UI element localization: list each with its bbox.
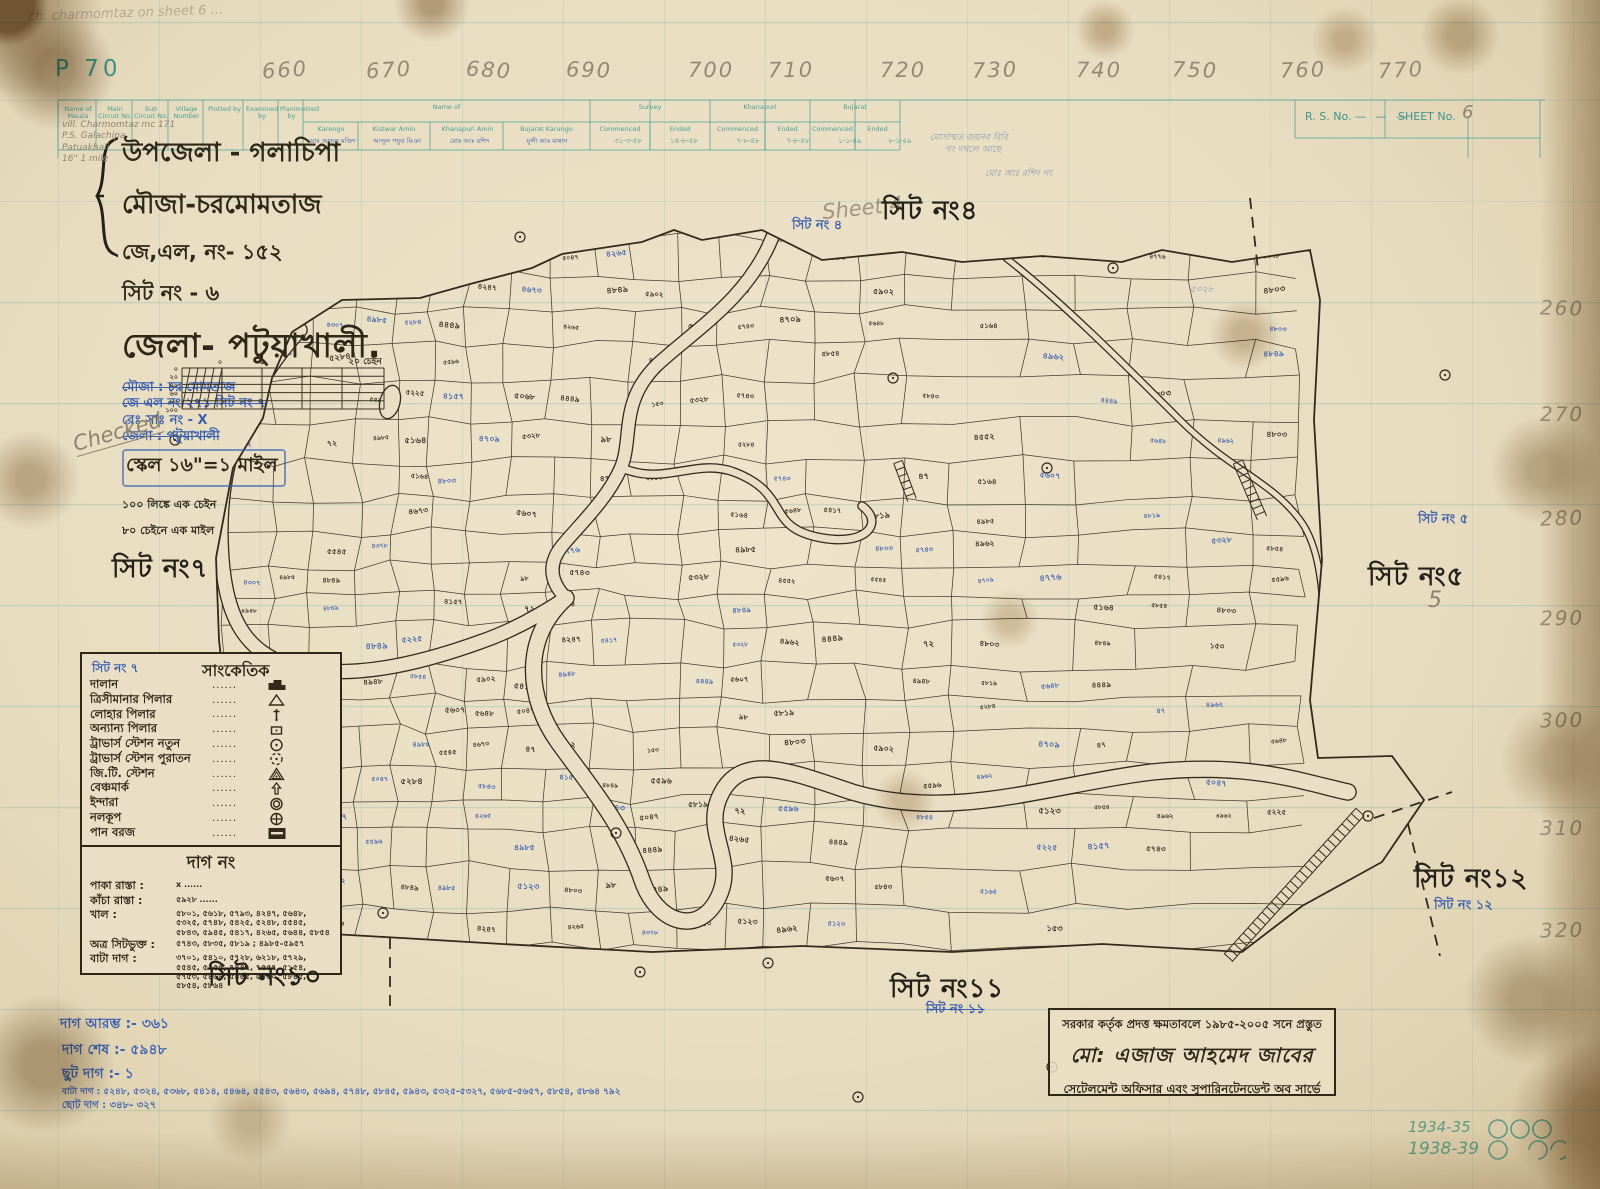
plot-number: ৪৮০৩ bbox=[564, 886, 583, 896]
plot-number: ৫৭৪৩ bbox=[737, 322, 754, 332]
table-column-header: মোঃ আঃ রশিদ bbox=[434, 138, 505, 145]
plot-number: ৫৫৯৬ bbox=[365, 837, 383, 846]
plot-number: ৫৬৪৮ bbox=[475, 709, 495, 718]
plot-number: ৪৮০৩ bbox=[979, 638, 1001, 649]
plot-number: ৪৪৪৯ bbox=[642, 845, 663, 856]
plot-number: ৫০৪৭ bbox=[371, 775, 388, 783]
plot-number: ৫৮৫৪ bbox=[1266, 544, 1284, 553]
dag-row-value: x ...... bbox=[176, 880, 332, 893]
dag-row-value: ৫৯২৮ ...... bbox=[176, 895, 332, 908]
top-ruler-number: 770 bbox=[1377, 57, 1424, 83]
hatched-road bbox=[894, 460, 1364, 962]
plot-number: ৫২৮৪ bbox=[738, 440, 755, 448]
plot-number: ৫৬৪৮ bbox=[1150, 437, 1167, 445]
plot-number: ৪৯৮৫ bbox=[438, 884, 456, 892]
plot-number: ৫৫৯৬ bbox=[778, 804, 800, 813]
plot-number: ৫৫৯৬ bbox=[445, 252, 463, 261]
top-ruler-number: 690 bbox=[566, 57, 613, 82]
plot-number: ৪৯৬২ bbox=[775, 923, 798, 936]
plot-number: ৯৮ bbox=[600, 435, 612, 445]
top-ruler-number: 750 bbox=[1172, 57, 1219, 82]
plot-number: ৪২৬৫ bbox=[728, 834, 750, 845]
plot-number: ১৫৩ bbox=[1046, 923, 1063, 933]
footer-blue-note: ছোট দাগ : ৩৪৮- ৩২৭ bbox=[62, 1098, 156, 1115]
svg-text:২০ চেইন: ২০ চেইন bbox=[348, 356, 382, 367]
top-ruler-number: 740 bbox=[1076, 58, 1122, 82]
plot-number: ৫৭৪৩ bbox=[569, 568, 590, 578]
plot-number: ৪৮৪৯ bbox=[602, 782, 618, 789]
well-icon bbox=[264, 796, 288, 811]
plot-number: ৪৭০৯ bbox=[478, 433, 500, 444]
mauza-note-line: vill. Charmomtaz mc 171 bbox=[62, 120, 175, 131]
plot-number: ৪৭ bbox=[918, 471, 929, 481]
table-column-header: Name of bbox=[303, 104, 590, 111]
plot-number: ৪২৬৫ bbox=[567, 922, 584, 931]
table-column-header: Bujarat Karungo bbox=[505, 126, 588, 133]
plot-number: ৪৭৭৬ bbox=[1039, 572, 1062, 584]
mauza-pencil-note: vill. Charmomtaz mc 171P.S. GalachipaPat… bbox=[62, 120, 175, 165]
plot-number: ১৫৩ bbox=[1209, 641, 1225, 651]
plot-number: ৪৯৮৫ bbox=[279, 574, 295, 581]
plot-number: ৪৭০৯ bbox=[977, 576, 994, 585]
plot-number: ৪৯৮৫ bbox=[735, 544, 756, 555]
table-column-header: Plotted by bbox=[206, 106, 243, 113]
plot-number: ৫৮৫৪ bbox=[1094, 804, 1110, 811]
plot-number: ৫৯০২ bbox=[873, 743, 894, 753]
blue-sheet-label: সিট নং ১১ bbox=[926, 1000, 985, 1021]
plot-number: ৫৩২৮ bbox=[521, 430, 541, 441]
plot-number: ৪৪৪৯ bbox=[828, 837, 848, 847]
table-column-header: Bujarat bbox=[810, 104, 900, 111]
plot-number: ৫৫৯৬ bbox=[443, 358, 460, 367]
plot-number: ৪৮০৩ bbox=[783, 736, 806, 748]
legend-dots: ...... bbox=[212, 798, 264, 809]
mauza-note-line: P.S. Galachipa bbox=[62, 131, 175, 142]
pan-boroj-icon bbox=[264, 826, 288, 841]
plot-number: ৫৬০৭ bbox=[445, 705, 466, 714]
plot-number: ৪৪৪৯ bbox=[438, 319, 460, 331]
plot-number: ৭২ bbox=[923, 639, 935, 649]
plot-number: ৯৮ bbox=[520, 574, 530, 583]
legend-dots: ...... bbox=[212, 769, 264, 780]
boundary-pillar-icon bbox=[264, 693, 288, 708]
plot-number: ৪৭ bbox=[1096, 740, 1106, 750]
plot-number: ৪৭০৯ bbox=[1038, 739, 1060, 750]
mouza-line: মৌজা-চরমোমতাজ bbox=[122, 184, 381, 228]
dag-row-value: ৫৮০১, ৫৬১৮, ৫৭৯৩, ৪২৪৭, ৫৬৪৮, ৫৩২৫, ৫৭৪৮… bbox=[176, 909, 332, 937]
svg-text:৮০: ৮০ bbox=[169, 398, 178, 406]
plot-number: ৫৬০৭ bbox=[516, 507, 538, 519]
table-column-header: মুন্সী আঃ মান্নান bbox=[507, 138, 587, 145]
traverse-old-icon bbox=[264, 752, 288, 767]
dag-row-label: পাকা রাস্তা : bbox=[90, 880, 176, 893]
plot-number: ৫৫৯৬ bbox=[1271, 574, 1290, 584]
plot-number: ৪৬৭৩ bbox=[521, 284, 543, 295]
table-column-header: Ended bbox=[857, 126, 898, 133]
svg-text:৫৩২৮: ৫৩২৮ bbox=[1190, 285, 1215, 295]
plot-number: ৫৬৪৮ bbox=[1271, 737, 1288, 746]
jl-no-line: জে,এল, নং- ১৫২ bbox=[122, 236, 381, 271]
plot-number: ৪৪৪৯ bbox=[696, 677, 714, 686]
legend-dots: ...... bbox=[212, 783, 264, 794]
plot-number: ৪৪৪৯ bbox=[821, 632, 843, 644]
legend-dots: ...... bbox=[212, 695, 264, 706]
plot-number: ৪৭ bbox=[1156, 707, 1165, 715]
plot-number: ৫৬৪৮ bbox=[868, 320, 884, 327]
plot-number: ৫৫৪৫ bbox=[439, 748, 458, 757]
table-column-header: Name of Mauza bbox=[60, 106, 96, 120]
plot-number: ৫১৬৪ bbox=[730, 510, 749, 520]
svg-text:০: ০ bbox=[218, 358, 222, 366]
right-ruler-number: 270 bbox=[1540, 402, 1584, 426]
plot-number: ৫১২৩ bbox=[737, 916, 759, 926]
dag-row-label: বাটা দাগ : bbox=[90, 953, 176, 990]
table-column-header: Sub Circuit No. bbox=[134, 106, 168, 120]
dag-row: খাল :৫৮০১, ৫৬১৮, ৫৭৯৩, ৪২৪৭, ৫৬৪৮, ৫৩২৫,… bbox=[90, 909, 332, 937]
right-ruler-number: 300 bbox=[1540, 708, 1585, 733]
plot-number: ৫৯০২ bbox=[645, 289, 664, 299]
benchmark-icon bbox=[264, 781, 288, 796]
sheet-no-label: SHEET No. bbox=[1398, 110, 1456, 123]
blue-sheet-label: সিট নং ১২ bbox=[1434, 896, 1493, 917]
legend-dots: ...... bbox=[212, 813, 264, 824]
footer-blue-note: ছুট দাগ :- ১ bbox=[62, 1062, 134, 1086]
plot-number: ৫৮৫৪ bbox=[916, 813, 933, 821]
plot-number: ৪৮৪৯ bbox=[732, 605, 752, 615]
diagonal-scale-bar: ০২০৪০৬০৮০১০০০৫২০ চেইন bbox=[140, 356, 440, 418]
table-column-header: Survey bbox=[590, 104, 710, 111]
plot-number: ৪৮০৩ bbox=[1216, 605, 1237, 615]
legend-dots: ...... bbox=[212, 754, 264, 765]
plot-number: ৪৩৭৮ bbox=[371, 543, 388, 551]
table-column-header: Planimetred by bbox=[280, 106, 303, 120]
top-ruler-number: 730 bbox=[972, 57, 1019, 83]
scale-note-2: ৮০ চেইনে এক মাইল bbox=[122, 522, 381, 541]
plot-number: ৫৮৫৪ bbox=[1151, 602, 1167, 610]
year-1: 1934-35 bbox=[1408, 1118, 1479, 1138]
plot-number: ৪৮০৩ bbox=[1263, 284, 1287, 297]
plot-number: ৫২২৫ bbox=[1036, 843, 1057, 853]
table-column-header: Village Number bbox=[170, 106, 203, 120]
plot-number: ৫৮১৯ bbox=[688, 800, 708, 809]
plot-number: ৫১৬৪ bbox=[980, 887, 997, 896]
plot-number: ১৫৩ bbox=[647, 747, 659, 755]
plot-number: ৫৫৯৬ bbox=[1039, 249, 1062, 261]
top-ruler-number: 660 bbox=[261, 56, 309, 83]
plot-number: ৫৩২৮ bbox=[1211, 535, 1233, 546]
plot-number: ৫১৬৪ bbox=[977, 477, 996, 486]
plot-number: ৪৯৪৮ bbox=[241, 608, 257, 615]
plot-number: ৪৮০৩ bbox=[1266, 430, 1288, 439]
footer-blue-note: দাগ আরম্ভ :- ৩৬১ bbox=[60, 1012, 169, 1036]
adjacent-sheet-label: সিট নং৭ bbox=[112, 548, 208, 592]
legend-rows: দালান......ত্রিসীমানার পিলার......লোহার … bbox=[90, 678, 332, 841]
svg-text:১০০: ১০০ bbox=[165, 406, 178, 414]
plot-number: ৪৯৬২ bbox=[1157, 812, 1175, 820]
title-block: উপজেলা - গলাচিপা মৌজা-চরমোমতাজ জে,এল, নং… bbox=[122, 132, 381, 541]
top-ruler-number: 700 bbox=[688, 58, 734, 82]
blue-sheet-label: সিট নং ৫ bbox=[1418, 510, 1468, 531]
plot-number: ৪৭৭৬ bbox=[1149, 253, 1165, 260]
iron-pillar-icon bbox=[264, 708, 288, 723]
archive-years: 1934-35 1938-39 bbox=[1408, 1118, 1479, 1160]
right-ruler-number: 280 bbox=[1540, 505, 1585, 530]
plot-number: ৫২২৫ bbox=[1267, 807, 1286, 816]
plot-number: ৪৮০৩ bbox=[437, 476, 456, 486]
svg-text:৬০: ৬০ bbox=[170, 390, 178, 398]
plot-number: ৪৭ bbox=[525, 745, 536, 755]
table-column-header: Commenced bbox=[812, 126, 853, 133]
svg-text:৪০: ৪০ bbox=[170, 381, 178, 389]
settlement-stamp: সরকার কর্তৃক প্রদত্ত ক্ষমতাবলে ১৯৮৫-২০০৫… bbox=[1048, 1008, 1336, 1096]
top-ruler-number: 680 bbox=[465, 56, 513, 83]
table-column-header: Commenced bbox=[712, 126, 763, 133]
plot-number: ৯৮ bbox=[739, 712, 749, 722]
plot-number: ৫৩২৮ bbox=[689, 394, 709, 405]
plot-number: ৫৩২৮ bbox=[732, 641, 748, 648]
plot-number: ৫২২৫ bbox=[401, 634, 423, 645]
cadastral-map-sheet: { "meta": { "plate_no": "P 70", "rs_labe… bbox=[0, 0, 1600, 1189]
dag-row: পাকা রাস্তা :x ...... bbox=[90, 880, 332, 893]
table-column-header: ৭-৮-৪৮ bbox=[722, 138, 774, 146]
traverse-new-icon bbox=[264, 737, 288, 752]
plot-number: ৪৯৬২ bbox=[779, 636, 800, 647]
plot-number: ৪২৬৫ bbox=[563, 323, 580, 331]
plot-number: ৫৮৪৩ bbox=[874, 883, 892, 891]
gt-station-icon bbox=[264, 767, 288, 782]
plot-number: ৪১৫৭ bbox=[443, 391, 465, 402]
plot-number: ৫৯০২ bbox=[873, 286, 894, 297]
plot-number: ৫৭৪৩ bbox=[774, 475, 792, 483]
plot-number: ৫০৬৮ bbox=[514, 390, 536, 401]
plot-number: ৪৮০৩ bbox=[1269, 325, 1287, 334]
legend-dots: ...... bbox=[212, 739, 264, 750]
plot-number: ৪২৪৭ bbox=[561, 634, 581, 644]
dag-row-label: খাল : bbox=[90, 909, 176, 937]
top-ruler-number: 710 bbox=[768, 58, 814, 83]
plot-number: ৫৪১৭ bbox=[823, 506, 841, 515]
table-column-header: Commenced bbox=[592, 126, 648, 133]
plot-number: ৫৪১৭ bbox=[1153, 572, 1171, 582]
plot-number: ৪৮০৩ bbox=[875, 544, 894, 553]
plot-number: ৫৭৪৩ bbox=[736, 391, 755, 401]
mauza-note-line: 16" 1 mile bbox=[62, 154, 175, 165]
plot-number: ৫২৮৪ bbox=[980, 703, 997, 712]
plot-number: ৪৬৭৩ bbox=[472, 739, 489, 749]
plot-number: ৪৮৪৯ bbox=[365, 641, 388, 652]
plot-number: ৫২৮৪ bbox=[404, 318, 421, 327]
plate-number: P 70 bbox=[55, 56, 121, 82]
legend-dots: ...... bbox=[212, 724, 264, 735]
plot-number: ৪৬৭৩ bbox=[408, 505, 430, 516]
plot-number: ৫৮৫৪ bbox=[821, 350, 839, 359]
plot-number: ৭২ bbox=[735, 806, 746, 816]
other-pillar-icon bbox=[264, 722, 288, 737]
table-column-header: ৮-১-৪৯ bbox=[874, 138, 926, 146]
plot-number: ৫১৬৪ bbox=[410, 472, 428, 481]
plot-number: ৫৮১৯ bbox=[773, 708, 794, 718]
plot-number: ৪৪৪৯ bbox=[1100, 396, 1119, 406]
table-column-header: ১৪-৮-৪৮ bbox=[658, 138, 710, 146]
plot-number: ৫১৬৪ bbox=[1093, 602, 1114, 612]
right-ruler-number: 310 bbox=[1540, 816, 1584, 840]
plot-number: ৫১২৩ bbox=[517, 882, 540, 893]
year-2: 1938-39 bbox=[1408, 1138, 1479, 1160]
plot-number: ৪৮৪৯ bbox=[322, 576, 340, 584]
plot-number: ৪৯৬২ bbox=[975, 539, 995, 549]
plot-number: ৫৬৪৮ bbox=[1040, 680, 1060, 691]
table-column-header: ১-১-৪৯ bbox=[824, 138, 876, 146]
dag-row-label: অত্র সিটভুক্ত : bbox=[90, 939, 176, 952]
plot-number: ৪২৬৫ bbox=[475, 813, 492, 821]
scale-note-1: ১০০ লিঙ্কে এক চেইন bbox=[122, 496, 381, 515]
plot-number: ৪৮৪৯ bbox=[606, 284, 629, 296]
plot-number: ৫৮৪৩ bbox=[478, 782, 497, 792]
legend-panel: সিট নং ৭ সাংকেতিক দালান......ত্রিসীমানার… bbox=[80, 652, 342, 852]
right-ruler-number: 320 bbox=[1540, 918, 1585, 943]
plot-number: ৫১৬৪ bbox=[980, 322, 998, 330]
dag-row: কাঁচা রাস্তা :৫৯২৮ ...... bbox=[90, 895, 332, 908]
blue-sheet-label: সিট নং ৪ bbox=[792, 216, 842, 237]
plot-number: ৪২৪৭ bbox=[476, 923, 496, 934]
map-boundary bbox=[216, 230, 1424, 952]
legend-item-label: পান বরজ bbox=[90, 824, 212, 843]
plot-number: ৫০৪৭ bbox=[639, 812, 660, 823]
adjacent-sheet-label: সিট নং১০ bbox=[208, 956, 322, 1000]
plot-number: ৫৭৪৩ bbox=[915, 545, 934, 554]
plot-number: ৪৯৬২ bbox=[1216, 813, 1232, 820]
top-ruler-number: 670 bbox=[365, 57, 412, 84]
plot-number: ৪৯৪৮ bbox=[558, 670, 577, 680]
plot-number: ৪১৫৭ bbox=[1087, 841, 1110, 853]
plot-number: ৫০৪৭ bbox=[1205, 778, 1227, 789]
plot-number: ৪৮৪৯ bbox=[1263, 349, 1284, 358]
adjacent-sheet-label: সিট নং৫ bbox=[1368, 556, 1464, 600]
rs-no-label: R. S. No. — — — bbox=[1305, 110, 1410, 123]
plot-number: ৪৩০৭ bbox=[243, 578, 261, 587]
plot-number: ৫২৮৪ bbox=[401, 777, 423, 787]
plot-number: ৫৫৪৫ bbox=[327, 547, 347, 556]
plot-number: ৫১২৩ bbox=[827, 919, 846, 928]
dag-panel-title: দাগ নং bbox=[90, 850, 332, 878]
plot-number: ৪২৬৫ bbox=[605, 248, 627, 259]
plot-number: ৫১৬৪ bbox=[404, 436, 426, 446]
table-column-header: Ended bbox=[767, 126, 808, 133]
archive-circles bbox=[1486, 1118, 1566, 1164]
plot-number: ৫৮৫৪ bbox=[410, 673, 427, 681]
plot-number: ৪৯৮৫ bbox=[514, 842, 535, 852]
footer-blue-note: দাগ শেষ :- ৫৯৪৮ bbox=[62, 1038, 167, 1062]
plot-number: ৪৭৭৬ bbox=[400, 288, 422, 299]
svg-text:৫: ৫ bbox=[259, 357, 265, 367]
svg-text:০: ০ bbox=[174, 365, 178, 373]
plot-number: ৪৯৬২ bbox=[1217, 436, 1234, 445]
plot-number: ৪৯৮৫ bbox=[976, 517, 995, 526]
plot-number: ৪৯৬২ bbox=[1042, 350, 1064, 361]
legend-title: সাংকেতিক bbox=[202, 658, 270, 685]
sheet-no-value: 6 bbox=[1462, 102, 1473, 123]
plot-number: ৫৮১৯ bbox=[1143, 511, 1160, 520]
plot-number: ৪৭৭৬ bbox=[976, 248, 997, 258]
dag-row-value: ৫৭৪৩, ৫৮৩৫, ৫৮১৯ ; ৪৯৮৫–৫৯৫৭ bbox=[176, 939, 332, 952]
plot-number: ৯৮ bbox=[605, 879, 617, 890]
plot-number: ১৫৩ bbox=[651, 400, 664, 408]
top-ruler-number: 760 bbox=[1280, 57, 1327, 83]
plot-number: ৫৯০২ bbox=[476, 674, 496, 684]
legend-dots: ...... bbox=[212, 828, 264, 839]
mauza-note-line: Patuakhali bbox=[62, 143, 175, 154]
legend-dots: ...... bbox=[212, 709, 264, 720]
plot-number: ৪৩৭৮ bbox=[642, 930, 658, 937]
plot-number: ৫৫৪৫ bbox=[870, 576, 886, 584]
plot-number: ৫৮১৯ bbox=[981, 680, 997, 687]
table-column-header: ৩১-৩-৪৮ bbox=[602, 138, 654, 146]
plot-number: ৫৭৪৩ bbox=[1146, 844, 1167, 854]
table-column-header: Examined by bbox=[246, 106, 278, 120]
plot-number: ৫৫৯৬ bbox=[923, 780, 942, 790]
legend-blue-overlap: সিট নং ৭ bbox=[92, 660, 138, 680]
plot-number: ৪৪৪৯ bbox=[559, 393, 580, 404]
table-column-header: ৭-৮-৪৮ bbox=[772, 138, 824, 146]
plot-number: ৪৯৬২ bbox=[976, 772, 993, 781]
plot-number: ৫৬০৭ bbox=[825, 874, 845, 884]
plot-number: ৫৪১৭ bbox=[600, 636, 617, 645]
top-ruler-number: 720 bbox=[880, 58, 926, 82]
plot-number: ৪৭০৯ bbox=[779, 314, 801, 325]
plot-number: ৪৮৪৯ bbox=[400, 882, 420, 893]
plot-number: ৪৫৫২ bbox=[778, 577, 796, 586]
plot-number: ৫৩২৮ bbox=[688, 572, 710, 582]
plot-number: ৪৯৮৫ bbox=[412, 740, 430, 748]
plot-number: ৪২৪৭ bbox=[477, 282, 497, 293]
adjacent-sheet-label: সিট নং৪ bbox=[882, 190, 978, 234]
plot-number: ৪৫৫২ bbox=[973, 431, 995, 442]
legend-item: পান বরজ...... bbox=[90, 826, 332, 841]
plot-number: ৫৮৪৩ bbox=[922, 391, 939, 400]
table-column-header: Ended bbox=[652, 126, 708, 133]
table-column-header: Khanapuri bbox=[710, 104, 810, 111]
dag-row: অত্র সিটভুক্ত :৫৭৪৩, ৫৮৩৫, ৫৮১৯ ; ৪৯৮৫–৫… bbox=[90, 939, 332, 952]
svg-text:২০: ২০ bbox=[170, 373, 178, 381]
right-ruler-number: 260 bbox=[1540, 295, 1585, 320]
footer-blue-note: বাটা দাগ : ৫২৪৮, ৫৩২৪, ৫৩৬৮, ৫৪১৪, ৫৪৬৪,… bbox=[62, 1084, 621, 1099]
table-column-header: Khanapuri Amin bbox=[432, 126, 503, 133]
scale-statement: স্কেল ১৬"=১ মাইল bbox=[122, 449, 286, 487]
plot-number: ৪৯৬২ bbox=[1206, 700, 1224, 709]
plot-number: ৪৮৪৯ bbox=[323, 604, 339, 612]
stamp-officer-name: মো: এজাজ আহমেদ জাবের bbox=[1050, 1041, 1334, 1074]
table-column-header: Main Circuit No. bbox=[98, 106, 132, 120]
plot-number: ৪৯৪৮ bbox=[363, 677, 384, 687]
plot-number: ৪৪৪৯ bbox=[1091, 680, 1111, 690]
sheet-line: সিট নং - ৬ bbox=[122, 277, 381, 312]
stamp-designation-line: সেটেলমেন্ট অফিসার এবং সুপারিনটেনডেন্ট অব… bbox=[1050, 1081, 1334, 1101]
tubewell-icon bbox=[264, 811, 288, 826]
plot-number: ৫৬০৭ bbox=[730, 675, 748, 684]
plot-number: ৫১২৩ bbox=[1038, 806, 1061, 816]
plot-number: ৫০৪৭ bbox=[562, 254, 579, 262]
plot-number: ৫৫৯৬ bbox=[650, 775, 672, 785]
stamp-authority-line: সরকার কর্তৃক প্রদত্ত ক্ষমতাবলে ১৯৮৫-২০০৫… bbox=[1050, 1016, 1334, 1035]
plot-number: ৪৮৪৯ bbox=[1094, 640, 1111, 648]
dag-row-label: কাঁচা রাস্তা : bbox=[90, 895, 176, 908]
plot-number: ৪৯৪৮ bbox=[912, 677, 931, 686]
plot-number: ৪১৫৭ bbox=[444, 597, 463, 607]
right-ruler-number: 290 bbox=[1540, 606, 1585, 631]
